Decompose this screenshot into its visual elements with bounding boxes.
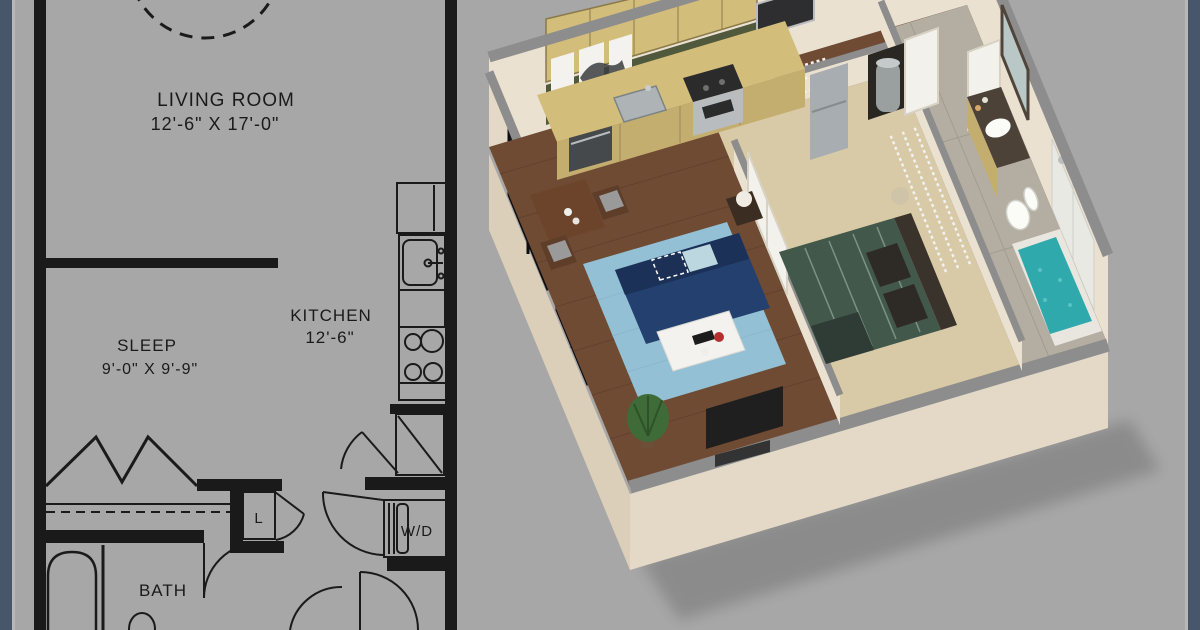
- living-room-label: LIVING ROOM: [157, 90, 295, 111]
- burner-1: [405, 334, 421, 350]
- wd-door-swing: [323, 492, 383, 555]
- wall-entry-bar: [390, 404, 457, 414]
- bathtub-2d: [48, 552, 96, 630]
- kitchen-dims: 12'-6": [305, 328, 354, 347]
- linen-door-swing: [276, 514, 304, 540]
- wd-door-leaf: [323, 492, 383, 500]
- floor-plan-image: LIVING ROOM 12'-6" X 17'-0" KITCHEN 12'-…: [0, 0, 1200, 630]
- faucet-3d: [645, 85, 651, 91]
- wall-wd-bottom: [387, 557, 457, 571]
- entry-nook-diagonal: [398, 416, 442, 473]
- table-lamp: [736, 191, 752, 207]
- water-heater: [876, 58, 900, 112]
- wall-wd-top: [382, 477, 457, 490]
- hall-door-swing: [360, 572, 418, 630]
- table-item-1: [564, 208, 572, 216]
- wall-linen-left: [230, 488, 243, 543]
- sleep-dims: 9'-0" X 9'-9": [102, 361, 198, 378]
- washer-dryer-label: W/D: [401, 523, 433, 540]
- sleep-label: SLEEP: [117, 336, 177, 355]
- red-flowers: [714, 332, 724, 342]
- dashed-table-outline: [129, 0, 281, 38]
- nightstand: [891, 187, 909, 205]
- kitchen-label: KITCHEN: [290, 306, 372, 325]
- living-room-dims: 12'-6" X 17'-0": [151, 114, 280, 134]
- linen-door-leaf: [275, 492, 304, 514]
- sink-knob-top: [439, 249, 444, 254]
- doors-2d: [46, 414, 446, 630]
- refrigerator-2d: [397, 183, 447, 233]
- kitchen-fixtures-2d: [397, 183, 447, 400]
- wall-bath-top: [34, 530, 204, 543]
- wall-entry-stub: [365, 477, 382, 490]
- wall-living-sleep-divider: [34, 258, 278, 268]
- counter-low-2d: [399, 383, 447, 400]
- left-strip: [0, 0, 12, 630]
- burner-3: [405, 364, 421, 380]
- entry-door-swing: [341, 432, 362, 469]
- burner-4: [424, 363, 442, 381]
- floor-plan-3d: [489, 0, 1160, 620]
- entry-door-leaf: [362, 432, 398, 473]
- bath-sink-2d: [129, 613, 155, 630]
- hall-closet-door: [905, 28, 938, 115]
- table-item-2: [573, 218, 580, 225]
- bifold-closet-doors-2d: [46, 437, 197, 486]
- linen-closet-label: L: [254, 510, 263, 527]
- toiletry-2: [982, 97, 988, 103]
- toiletry-1: [975, 105, 981, 111]
- bath-door2-swing: [290, 587, 342, 630]
- burner-2: [421, 330, 443, 352]
- white-saucer: [701, 348, 709, 356]
- floor-plan-2d: LIVING ROOM 12'-6" X 17'-0" KITCHEN 12'-…: [34, 0, 457, 630]
- cooktop-burner-2: [719, 79, 725, 85]
- sink-knob-bottom: [439, 274, 444, 279]
- bath-label: BATH: [139, 581, 187, 600]
- right-strip: [1188, 0, 1200, 630]
- cooktop-burner-1: [703, 85, 709, 91]
- counter-mid-2d: [399, 290, 445, 327]
- scene: LIVING ROOM 12'-6" X 17'-0" KITCHEN 12'-…: [0, 0, 1200, 630]
